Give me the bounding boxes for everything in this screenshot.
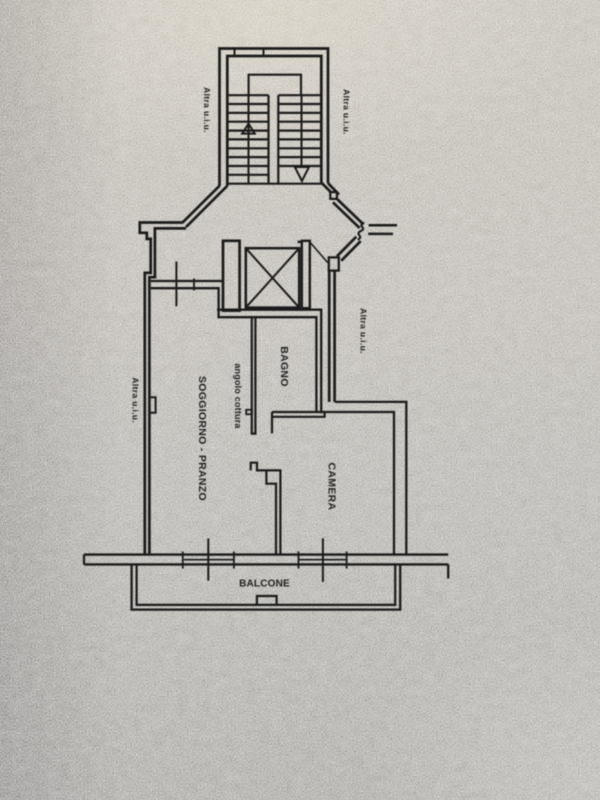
svg-text:BALCONE: BALCONE [239, 578, 290, 589]
svg-text:CAMERA: CAMERA [326, 463, 338, 511]
svg-text:Altra u.i.u.: Altra u.i.u. [130, 377, 140, 423]
svg-text:SOGGIORNO - PRANZO: SOGGIORNO - PRANZO [196, 376, 208, 501]
svg-text:Altra u.i.u.: Altra u.i.u. [358, 308, 368, 354]
svg-text:Altra u.i.u.: Altra u.i.u. [342, 89, 352, 135]
svg-text:Altra u.i.u.: Altra u.i.u. [202, 87, 212, 133]
svg-text:BAGNO: BAGNO [278, 346, 290, 387]
svg-text:angolo cottura: angolo cottura [233, 363, 243, 429]
